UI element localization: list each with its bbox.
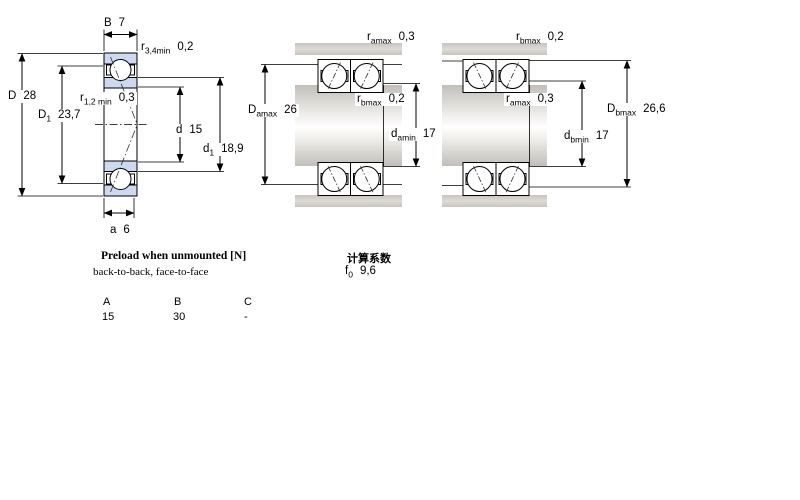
dim-label-B: B7 (104, 17, 125, 30)
dim-label-rbmax-b: rbmax0,2 (516, 31, 564, 44)
preload-subtitle: back-to-back, face-to-face (93, 266, 208, 278)
bearing-drawing-page: B7 r3,4min0,2 D28 D123,7 r1,2 min0,3 d15… (0, 0, 800, 500)
dim-label-D1: D123,7 (36, 109, 82, 122)
mounted-pair-diagram-a (261, 43, 420, 207)
dim-label-d1: d118,9 (201, 143, 246, 156)
dim-label-ramax-b: ramax0,3 (504, 93, 556, 106)
table-header-a: A (103, 296, 110, 308)
dim-label-ramax-a: ramax0,3 (367, 31, 415, 44)
dim-label-Dbmax: Dbmax26,6 (605, 103, 668, 116)
dim-label-a: a6 (110, 224, 130, 237)
table-value-a: 15 (102, 311, 114, 323)
dim-label-damin: damin17 (389, 128, 438, 141)
mounted-pair-diagram-b (442, 43, 631, 207)
preload-title: Preload when unmounted [N] (101, 250, 246, 262)
f0-label: f09,6 (345, 265, 376, 278)
table-value-c: - (244, 311, 248, 323)
dim-label-Damax: Damax26 (246, 104, 299, 117)
dim-label-r12min: r1,2 min0,3 (78, 92, 137, 105)
table-value-b: 30 (173, 311, 185, 323)
table-header-b: B (174, 296, 181, 308)
dim-label-r34min: r3,4min0,2 (141, 41, 193, 54)
dim-label-dbmin: dbmin17 (562, 130, 611, 143)
dim-label-D: D28 (6, 90, 38, 103)
dim-label-d: d15 (174, 124, 204, 137)
table-header-c: C (244, 296, 252, 308)
dim-label-rbmax-a: rbmax0,2 (355, 93, 407, 106)
calc-factor-title: 计算系数 (347, 250, 391, 266)
